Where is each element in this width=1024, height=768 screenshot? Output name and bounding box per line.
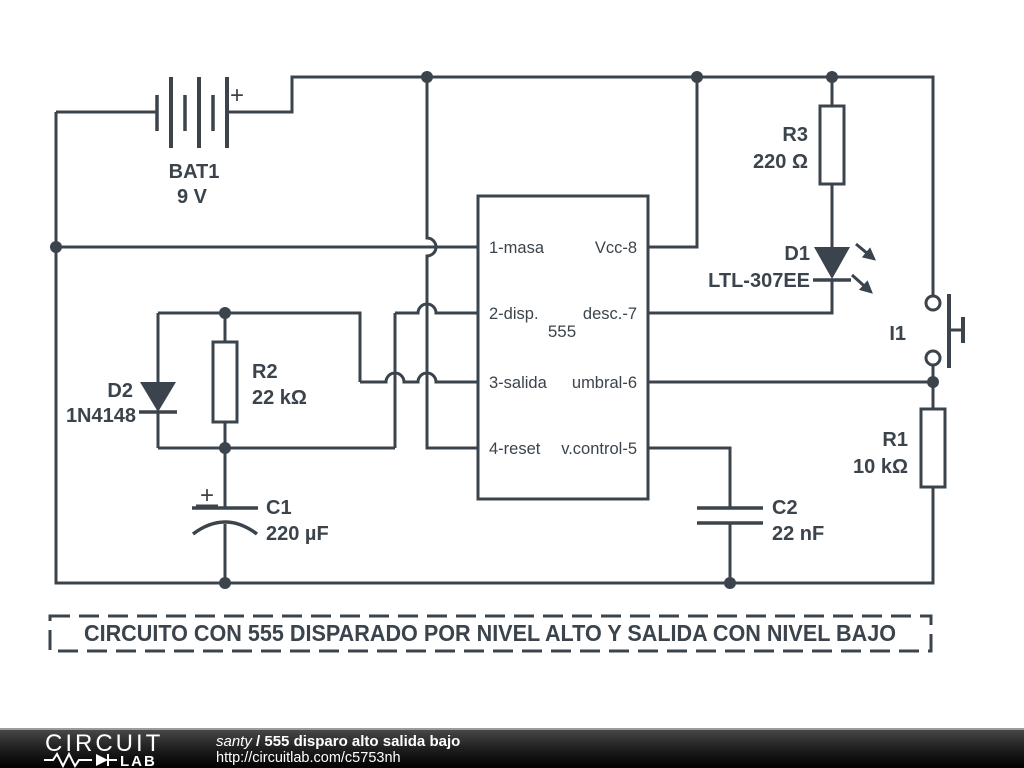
ic-pin-4-reset: 4-reset xyxy=(489,440,541,458)
footer-bar: CIRCUIT LAB santy / 555 disparo alto sal… xyxy=(0,728,1024,768)
footer-credits: santy / 555 disparo alto salida bajo htt… xyxy=(216,733,460,767)
pushbutton-i1: I1 xyxy=(889,294,963,368)
r2-ref: R2 xyxy=(252,361,278,383)
junction-dot xyxy=(219,307,231,319)
capacitor-c1: + C1 220 µF xyxy=(192,482,329,545)
net-vcontrol-pin5 xyxy=(648,448,730,583)
capacitor-c2: C2 22 nF xyxy=(697,497,824,545)
battery-value: 9 V xyxy=(177,186,208,208)
junction-dot xyxy=(50,241,62,253)
c2-value: 22 nF xyxy=(772,523,824,545)
led-triangle xyxy=(814,247,850,279)
r2-value: 22 kΩ xyxy=(252,387,307,409)
circuitlab-logo: CIRCUIT LAB xyxy=(44,731,194,768)
d1-ref: D1 xyxy=(784,243,810,265)
junction-dot xyxy=(724,577,736,589)
i1-ref: I1 xyxy=(889,323,906,345)
junction-dot xyxy=(219,442,231,454)
resistor-body xyxy=(213,342,237,422)
d1-value: LTL-307EE xyxy=(708,270,810,292)
net-reset-vertical-with-hop xyxy=(427,77,478,448)
diode-triangle xyxy=(140,382,176,412)
battery-bat1: + BAT1 9 V xyxy=(157,77,244,208)
ic-555: 1-masa 2-disp. 3-salida 4-reset Vcc-8 de… xyxy=(478,196,648,499)
junction-dot xyxy=(826,71,838,83)
switch-terminal-bottom xyxy=(926,351,940,365)
credit-line: santy / 555 disparo alto salida bajo xyxy=(216,733,460,750)
d2-value: 1N4148 xyxy=(66,405,136,427)
logo-word-lab: LAB xyxy=(120,753,157,768)
led-emission-arrows xyxy=(852,244,874,292)
resistor-body xyxy=(921,409,945,487)
net-trigger-pin2-with-hop xyxy=(395,304,478,313)
schematic-canvas: + BAT1 9 V 1-masa 2-disp. 3-salida 4-res… xyxy=(0,0,1024,728)
document-title: 555 disparo alto salida bajo xyxy=(264,733,460,750)
junction-dot xyxy=(927,376,939,388)
author-name: santy xyxy=(216,733,252,750)
r3-value: 220 Ω xyxy=(753,151,808,173)
ic-pin-5-vcontrol: v.control-5 xyxy=(561,440,637,458)
schematic: + BAT1 9 V 1-masa 2-disp. 3-salida 4-res… xyxy=(0,0,1024,728)
switch-terminal-top xyxy=(926,296,940,310)
ic-pin-1-masa: 1-masa xyxy=(489,239,545,257)
c1-ref: C1 xyxy=(266,497,292,519)
r3-ref: R3 xyxy=(782,124,808,146)
junction-dot xyxy=(421,71,433,83)
schematic-caption: CIRCUITO CON 555 DISPARADO POR NIVEL ALT… xyxy=(84,620,896,646)
ic-pin-8-vcc: Vcc-8 xyxy=(595,239,637,257)
d2-ref: D2 xyxy=(107,380,133,402)
battery-plus-sign: + xyxy=(230,82,244,109)
c2-ref: C2 xyxy=(772,497,798,519)
ic-pin-7-desc: desc.-7 xyxy=(583,305,637,323)
led-d1: D1 LTL-307EE xyxy=(708,243,874,292)
battery-symbol xyxy=(157,77,227,148)
credit-separator: / xyxy=(256,733,260,750)
resistor-r2: R2 22 kΩ xyxy=(213,342,307,422)
title-box: CIRCUITO CON 555 DISPARADO POR NIVEL ALT… xyxy=(50,616,931,651)
ic-name: 555 xyxy=(548,322,576,341)
resistor-body xyxy=(820,106,844,184)
r1-ref: R1 xyxy=(882,429,908,451)
net-vcc-pin8 xyxy=(648,77,697,247)
resistor-r1: R1 10 kΩ xyxy=(853,409,945,487)
ic-pin-3-salida: 3-salida xyxy=(489,374,548,392)
battery-ref: BAT1 xyxy=(169,161,220,183)
junction-dot xyxy=(691,71,703,83)
ic-pin-2-disp: 2-disp. xyxy=(489,305,539,323)
ic-pin-6-umbral: umbral-6 xyxy=(572,374,637,392)
junction-dot xyxy=(219,577,231,589)
net-salida-pin3-with-hops xyxy=(360,373,478,382)
circuitlab-schematic-page: + BAT1 9 V 1-masa 2-disp. 3-salida 4-res… xyxy=(0,0,1024,768)
resistor-r3: R3 220 Ω xyxy=(753,106,844,184)
diode-d2: D2 1N4148 xyxy=(66,380,177,427)
r1-value: 10 kΩ xyxy=(853,456,908,478)
schematic-url: http://circuitlab.com/c5753nh xyxy=(216,750,460,767)
c1-value: 220 µF xyxy=(266,523,329,545)
